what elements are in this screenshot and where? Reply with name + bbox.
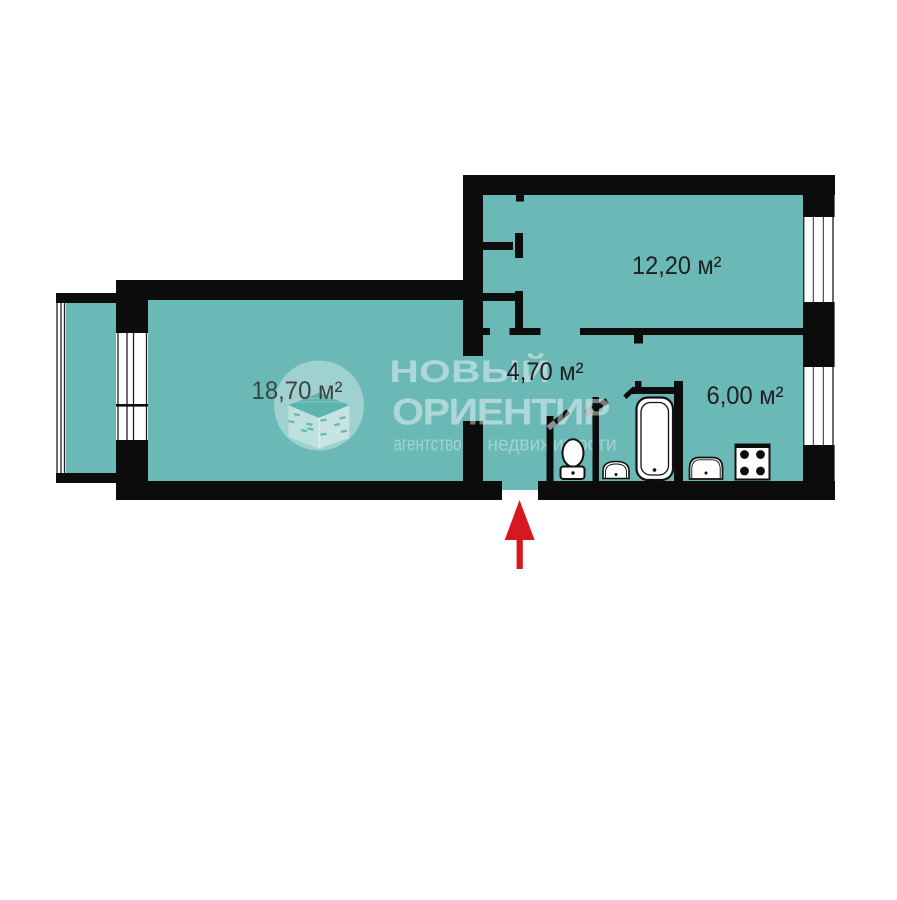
svg-text:6,00 м²: 6,00 м²	[707, 382, 784, 410]
svg-text:18,70 м²: 18,70 м²	[252, 377, 343, 405]
svg-text:агентство: агентство	[394, 434, 462, 456]
svg-text:12,20 м²: 12,20 м²	[632, 252, 722, 280]
svg-text:ОРИЕНТИР: ОРИЕНТИР	[392, 392, 609, 433]
svg-text:4,70 м²: 4,70 м²	[507, 358, 584, 386]
